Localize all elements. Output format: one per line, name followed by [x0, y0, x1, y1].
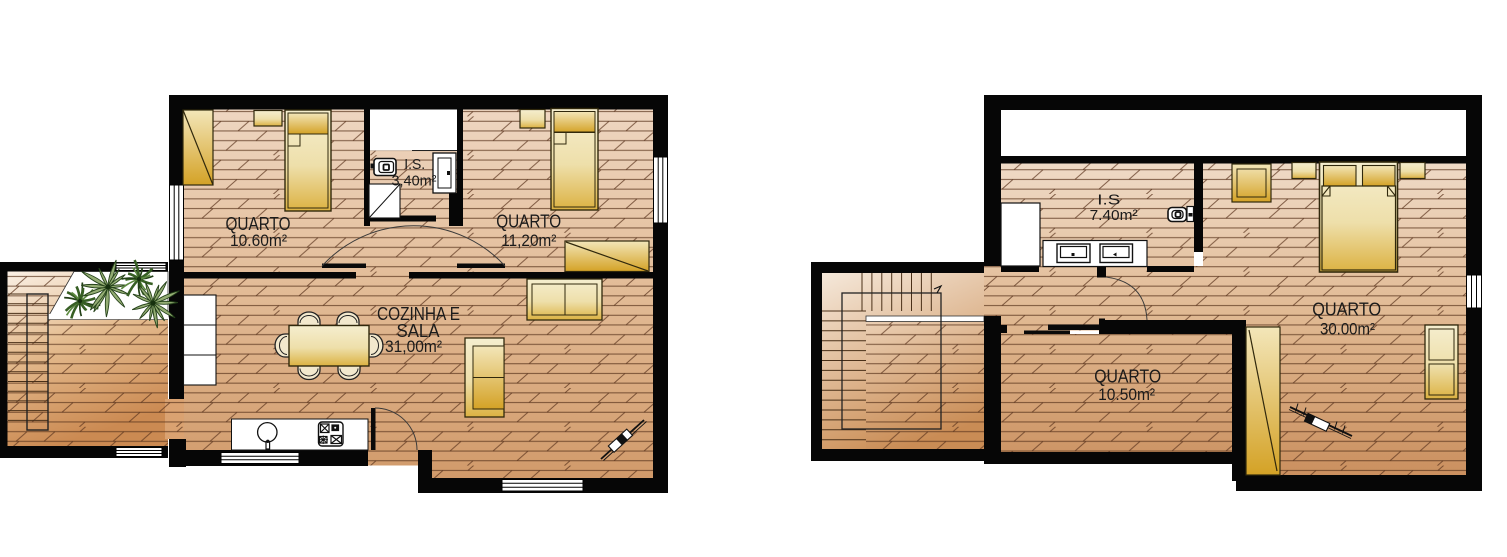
svg-text:31,00m²: 31,00m²: [385, 337, 442, 356]
svg-text:11,20m²: 11,20m²: [501, 231, 556, 250]
svg-text:30.00m²: 30.00m²: [1320, 320, 1375, 339]
svg-text:I.S.: I.S.: [404, 156, 425, 173]
svg-text:3,40m²: 3,40m²: [392, 173, 437, 190]
svg-text:10.50m²: 10.50m²: [1098, 385, 1155, 404]
svg-text:10.60m²: 10.60m²: [230, 231, 287, 250]
svg-text:QUARTO: QUARTO: [496, 212, 561, 232]
svg-text:QUARTO: QUARTO: [1312, 300, 1381, 320]
svg-text:I.S: I.S: [1097, 192, 1120, 209]
svg-text:QUARTO: QUARTO: [1094, 367, 1161, 387]
svg-text:7.40m²: 7.40m²: [1090, 207, 1138, 224]
